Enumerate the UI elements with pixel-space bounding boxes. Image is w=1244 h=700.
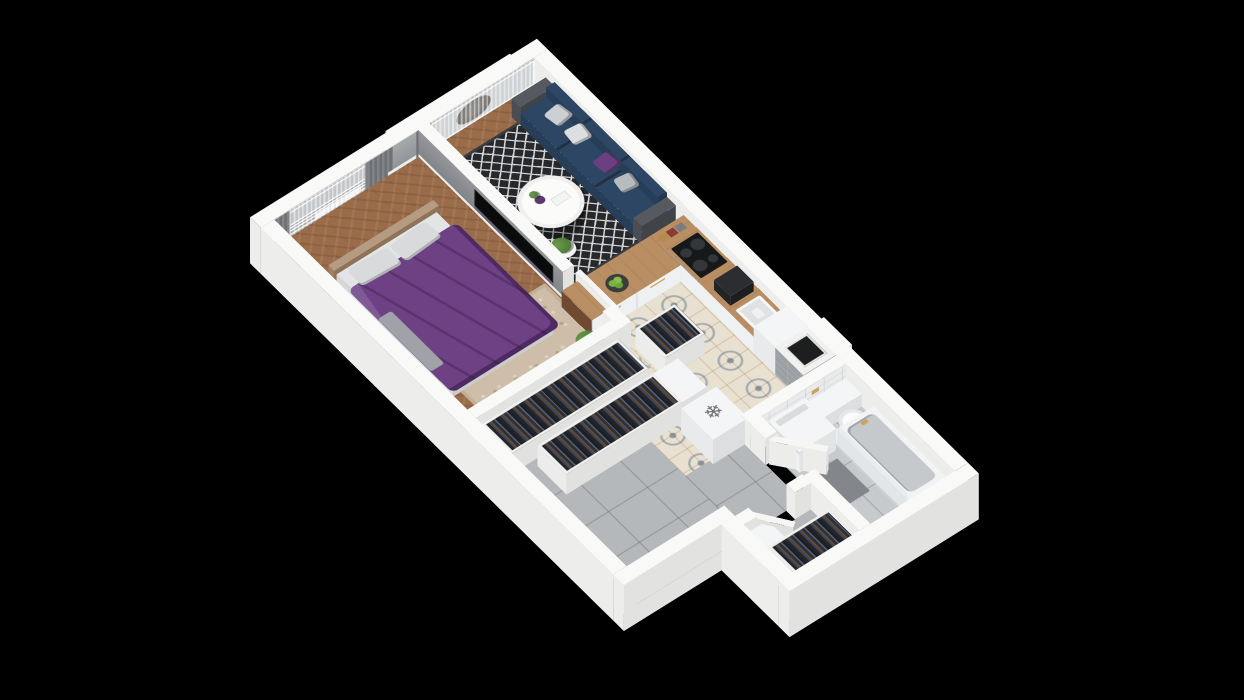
toilet-flush-plate [811,387,818,395]
outer-wall-south-west-face [779,581,790,638]
outer-wall-southwest-west-face [613,575,624,632]
outer-wall-north-west-face [250,217,261,274]
floor-plan-render: ❄ [0,0,1244,700]
